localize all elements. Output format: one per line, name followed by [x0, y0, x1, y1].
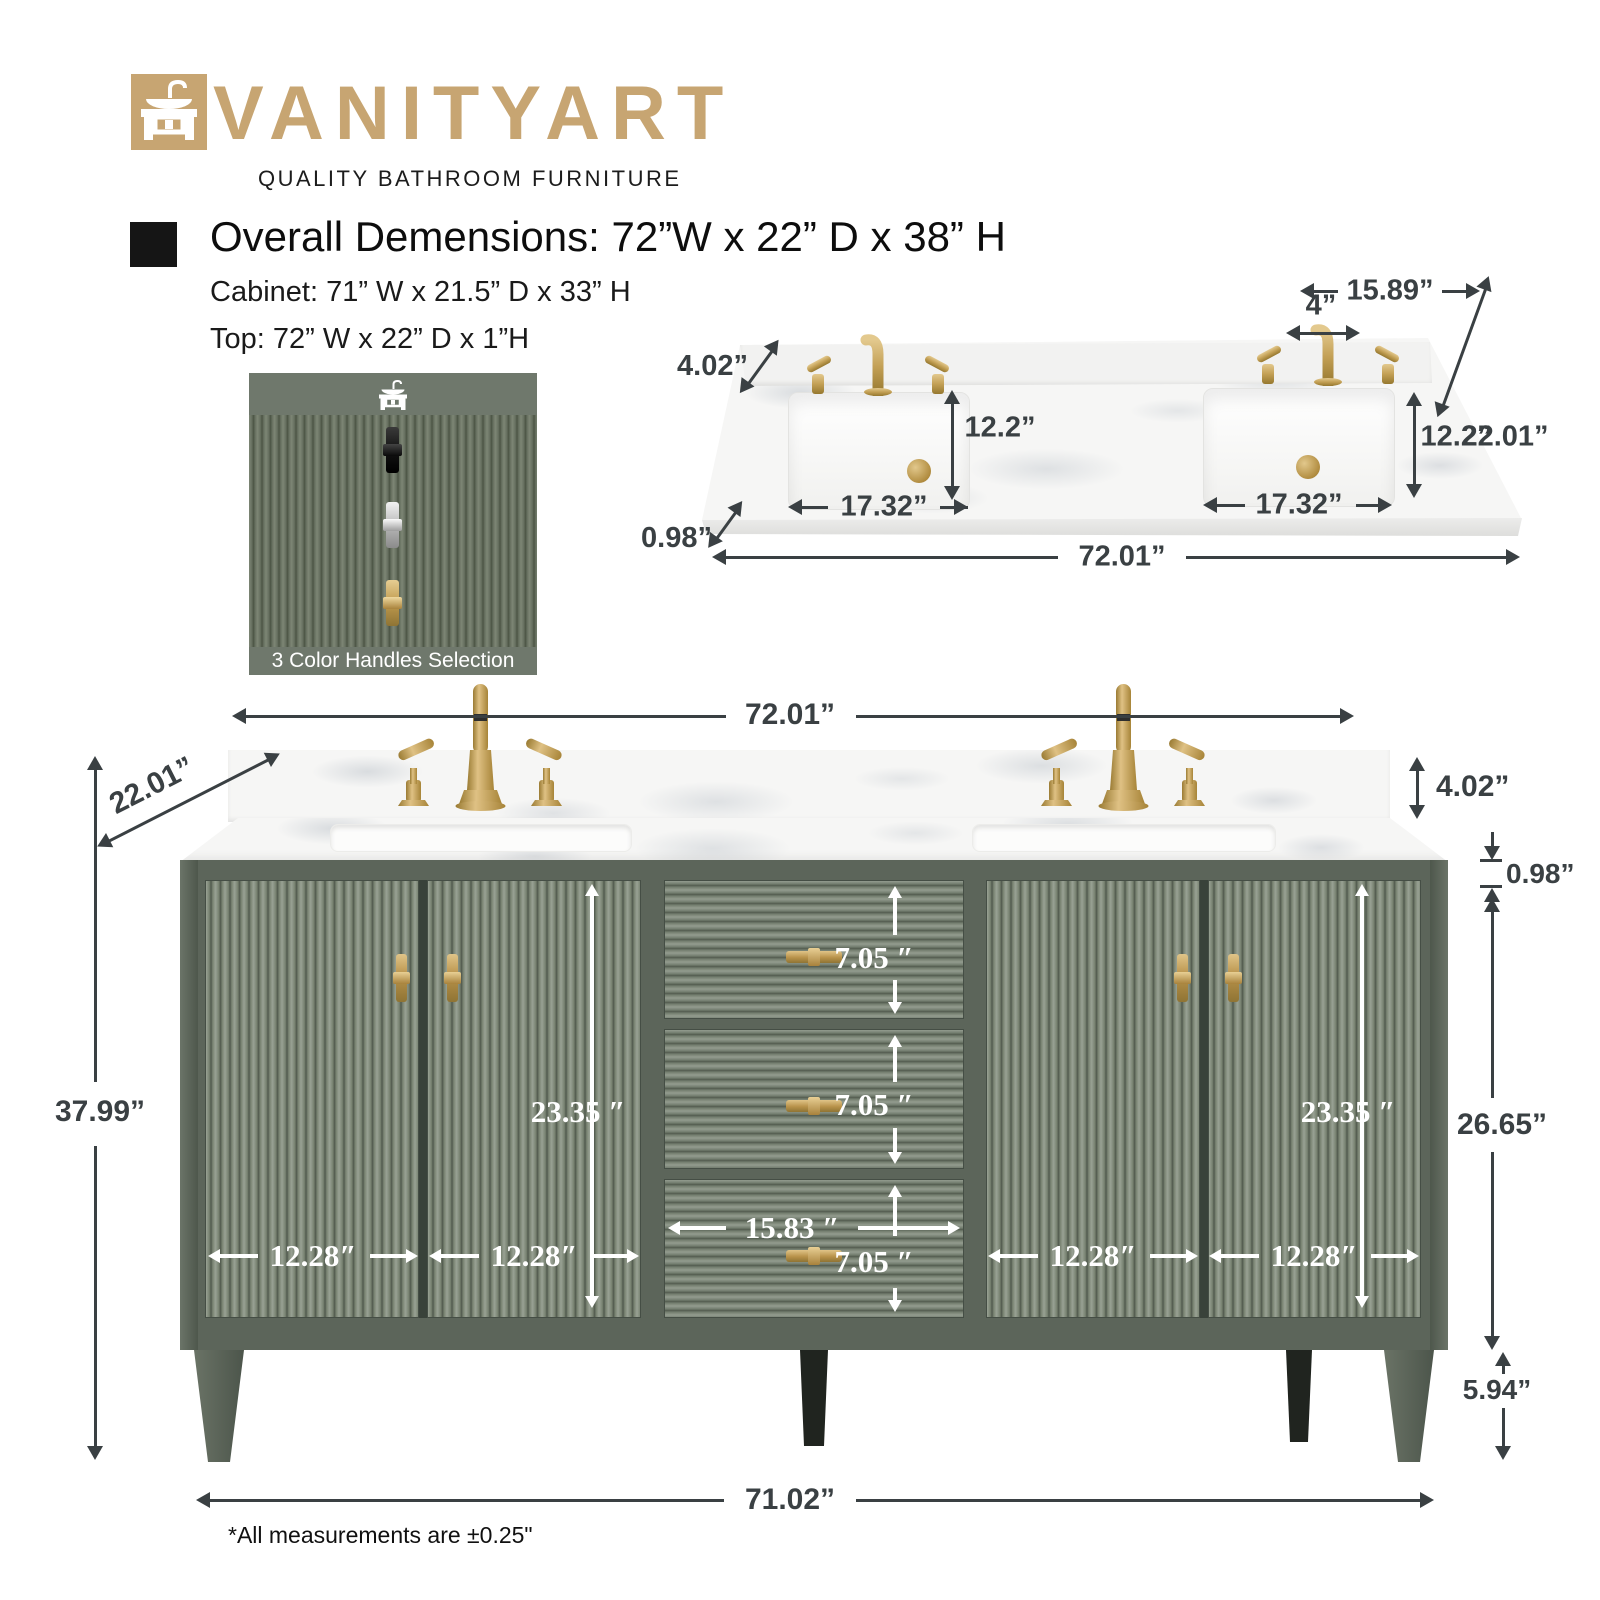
ct-left-sink-width-label: 17.32”	[840, 491, 927, 524]
leg-height-label: 5.94”	[1463, 1374, 1532, 1406]
door-3-handle	[1177, 954, 1188, 1002]
drawer-width-label: 15.83 ″	[745, 1210, 840, 1246]
door-1-width-arrow	[208, 1249, 220, 1263]
vanity-width-label: 72.01”	[745, 698, 835, 732]
vanityart-logo-icon	[131, 74, 207, 150]
drawer-3-height-label: 7.05 ″	[834, 1244, 913, 1280]
left-faucet-set-top-view	[800, 316, 956, 396]
door-4-handle	[1228, 954, 1239, 1002]
door-2-width-arrow	[429, 1249, 441, 1263]
brand-name: VANITYART	[213, 70, 734, 157]
door-1-handle	[396, 954, 407, 1002]
gold-handle-option	[386, 580, 399, 626]
door-2-handle	[447, 954, 458, 1002]
door-1-width-label: 12.28″	[270, 1238, 357, 1274]
door-gap-right	[1200, 880, 1208, 1318]
ct-left-sink-depth-label: 12.2”	[965, 412, 1036, 445]
cabinet-right-side	[1430, 860, 1448, 1350]
handles-selection-box: 3 Color Handles Selection	[249, 373, 537, 675]
right-door-height-label: 23.35 ″	[1301, 1094, 1396, 1130]
ct-depth-label: 22.01”	[1461, 421, 1548, 454]
right-sink-cutout	[972, 824, 1276, 852]
ct-width-label: 72.01”	[1078, 541, 1165, 574]
ct-backsplash-height-label: 4.02”	[628, 350, 748, 383]
ct-faucet-spacing-label: 4”	[1306, 290, 1337, 323]
countertop-front-edge	[702, 518, 1522, 538]
front-right-leg	[1384, 1350, 1434, 1462]
left-sink-cutout	[330, 824, 632, 852]
handles-box-caption-band: 3 Color Handles Selection	[249, 647, 537, 675]
door-gap-left	[419, 880, 427, 1318]
cabinet-height-label: 26.65”	[1457, 1108, 1547, 1142]
chrome-handle-option	[386, 502, 399, 548]
top-dimensions: Top: 72” W x 22” D x 1”H	[210, 323, 529, 356]
ct-right-backsplash-width-label: 15.89”	[1346, 275, 1433, 308]
cabinet-dimensions: Cabinet: 71” W x 21.5” D x 33” H	[210, 276, 631, 309]
center-support-leg	[800, 1350, 828, 1446]
door-3-width-label: 12.28″	[1050, 1238, 1137, 1274]
measurements-footnote: *All measurements are ±0.25"	[228, 1522, 533, 1549]
left-door-height-label: 23.35 ″	[531, 1094, 626, 1130]
sink-icon	[373, 377, 413, 413]
drawer-1-height-label: 7.05 ″	[834, 940, 913, 976]
door-4-width-label: 12.28″	[1271, 1238, 1358, 1274]
vanity-backsplash-height-label: 4.02”	[1436, 770, 1509, 804]
vanity-top-thickness-label: 0.98”	[1506, 858, 1575, 890]
inner-right-support-leg	[1286, 1350, 1312, 1442]
ct-thickness-label: 0.98”	[596, 522, 712, 555]
heading-bullet	[130, 222, 177, 267]
base-width-label: 71.02”	[745, 1483, 835, 1517]
handles-box-header	[249, 373, 537, 415]
door-4-width-arrow	[1209, 1249, 1221, 1263]
cabinet-left-side	[180, 860, 198, 1350]
right-sink-drain	[1296, 455, 1320, 479]
drawer-2-height-label: 7.05 ″	[834, 1087, 913, 1123]
ct-depth-arrow	[1427, 272, 1501, 421]
door-2-width-label: 12.28″	[491, 1238, 578, 1274]
door-3-width-arrow	[988, 1249, 1000, 1263]
left-faucet-set-front-view	[378, 680, 582, 822]
ct-right-sink-width-label: 17.32”	[1255, 489, 1342, 522]
product-dimension-sheet: VANITYART QUALITY BATHROOM FURNITURE Ove…	[0, 0, 1600, 1600]
overall-height-label: 37.99”	[55, 1095, 145, 1129]
left-sink-drain	[907, 459, 931, 483]
right-faucet-set-front-view	[1021, 680, 1225, 822]
black-handle-option	[386, 427, 399, 473]
drawer-width-arrow	[668, 1221, 680, 1235]
brand-tagline: QUALITY BATHROOM FURNITURE	[258, 166, 682, 192]
handles-box-caption: 3 Color Handles Selection	[272, 649, 515, 673]
front-left-leg	[194, 1350, 244, 1462]
overall-dimensions-title: Overall Demensions: 72”W x 22” D x 38” H	[210, 213, 1006, 261]
